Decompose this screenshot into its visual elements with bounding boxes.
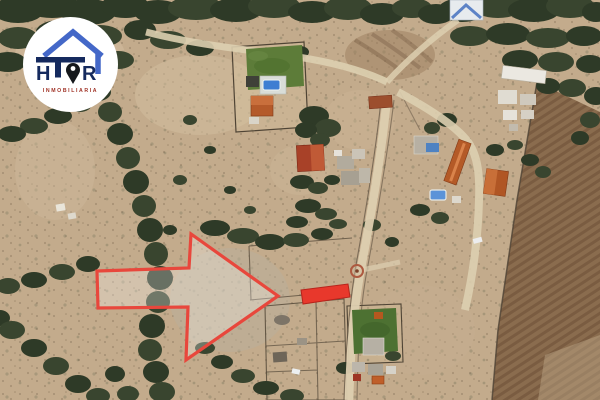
blue-roof-building [450,0,483,20]
swimming-pool [263,80,280,90]
brand-tagline: INMOBILIARIA [43,88,98,94]
agency-logo-badge: H R INMOBILIARIA [23,17,118,112]
solar-blue-roof [426,143,439,152]
red-roof-house [296,144,324,171]
brand-letter-h: H [36,63,50,85]
listing-screenshot: H R INMOBILIARIA [0,0,600,400]
brand-letter-r: R [82,63,97,85]
location-pin-icon [66,63,80,84]
waypoint-circle [351,265,363,277]
small-pool [430,190,446,200]
brand-wordmark: H R [36,57,97,85]
